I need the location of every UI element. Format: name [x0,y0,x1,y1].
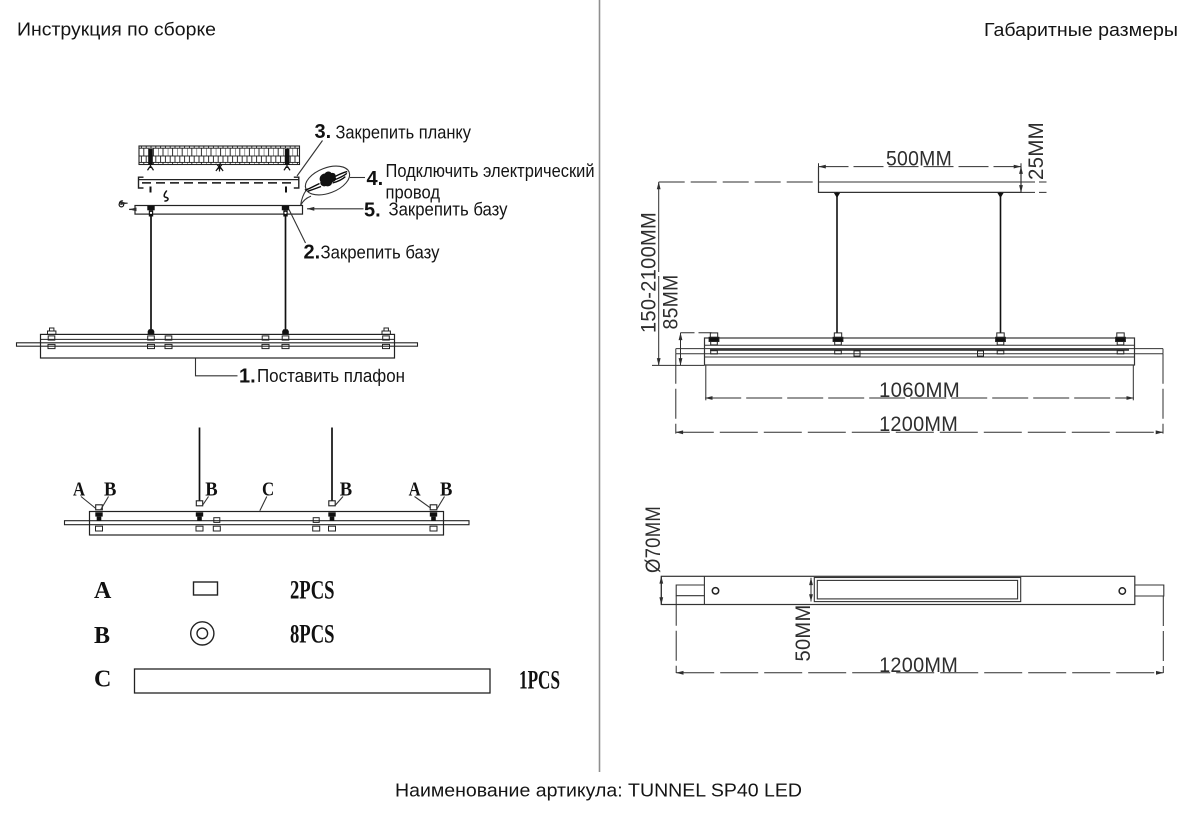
svg-text:2.: 2. [304,242,321,264]
svg-text:8PCS: 8PCS [290,620,335,649]
svg-text:3.: 3. [315,121,332,143]
svg-text:1200MM: 1200MM [879,653,958,677]
svg-text:Закрепить базу: Закрепить базу [389,199,509,220]
svg-text:500MM: 500MM [886,147,952,171]
svg-text:C: C [94,667,111,693]
svg-text:1200MM: 1200MM [879,412,958,436]
svg-text:A: A [73,479,85,501]
svg-text:A: A [94,578,112,604]
svg-text:5.: 5. [364,200,381,222]
svg-text:A: A [409,479,421,501]
svg-text:Наименование артикула: TUNNEL: Наименование артикула: TUNNEL SP40 LED [395,780,802,801]
svg-text:B: B [94,623,110,649]
svg-text:150-2100MM: 150-2100MM [637,212,661,333]
svg-text:85MM: 85MM [659,275,683,330]
svg-text:B: B [440,479,452,501]
svg-text:B: B [104,479,116,501]
svg-text:Подключить электрический: Подключить электрический [386,160,595,181]
svg-text:1PCS: 1PCS [519,665,560,694]
svg-text:C: C [262,479,274,501]
svg-text:B: B [205,479,217,501]
svg-text:2PCS: 2PCS [290,575,335,604]
svg-text:25MM: 25MM [1024,122,1048,180]
svg-text:Закрепить планку: Закрепить планку [336,122,472,143]
svg-text:1.: 1. [239,366,256,388]
svg-text:4.: 4. [367,168,384,190]
svg-text:50MM: 50MM [791,605,815,662]
svg-text:1060MM: 1060MM [879,378,960,402]
svg-text:Инструкция по сборке: Инструкция по сборке [17,19,216,40]
svg-text:B: B [340,479,352,501]
svg-text:Габаритные размеры: Габаритные размеры [984,19,1178,40]
svg-text:Ø70MM: Ø70MM [641,506,665,573]
svg-text:Закрепить базу: Закрепить базу [321,242,441,263]
svg-text:Поставить плафон: Поставить плафон [257,365,405,386]
